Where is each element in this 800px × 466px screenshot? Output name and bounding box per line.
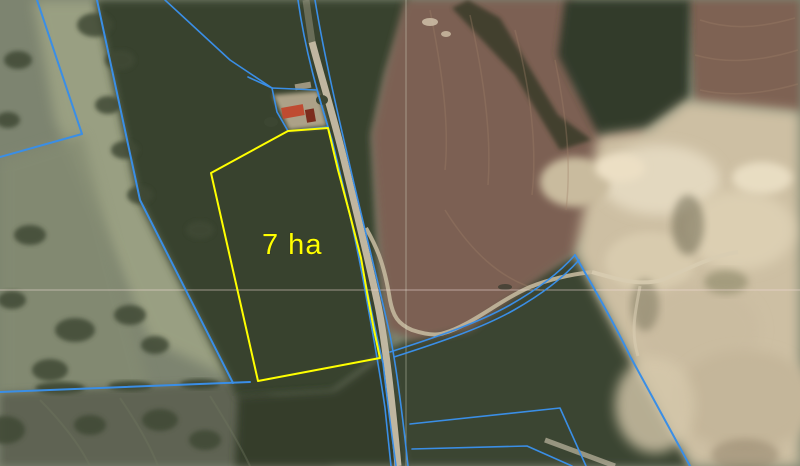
field-light-patch [422,18,438,26]
field-light-patch [441,31,451,37]
farm-tree [316,95,328,105]
aerial-map: 7 ha [0,0,800,466]
truck [498,284,512,290]
farm-tree [264,117,278,127]
area-label: 7 ha [262,229,322,261]
map-canvas[interactable]: 7 ha [0,0,800,466]
plowed-field-topright [688,0,800,112]
